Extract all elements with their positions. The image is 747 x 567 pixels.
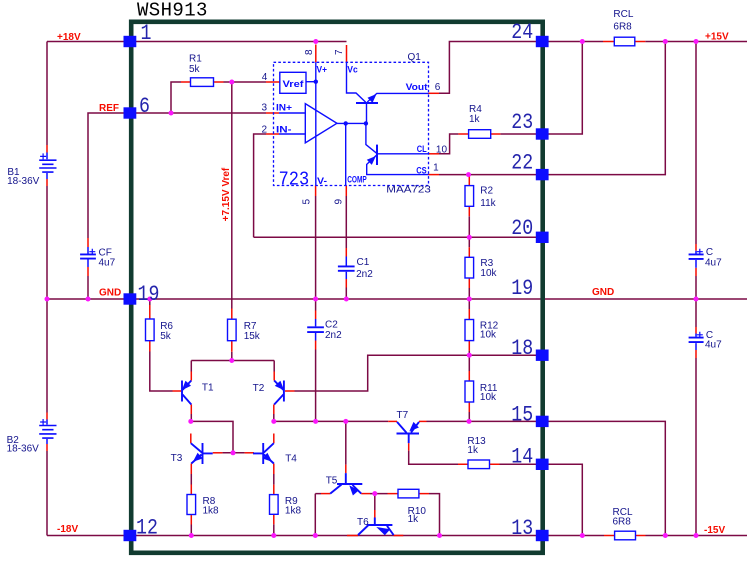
svg-text:18-36V: 18-36V bbox=[7, 443, 40, 454]
svg-text:T6: T6 bbox=[357, 517, 369, 528]
svg-text:18-36V: 18-36V bbox=[7, 176, 40, 187]
svg-text:19: 19 bbox=[138, 283, 160, 308]
svg-text:-18V: -18V bbox=[57, 524, 78, 535]
svg-text:1k: 1k bbox=[467, 445, 479, 456]
svg-text:15k: 15k bbox=[244, 331, 261, 342]
svg-text:6: 6 bbox=[139, 95, 150, 120]
svg-text:T2: T2 bbox=[253, 383, 265, 394]
svg-text:1k8: 1k8 bbox=[203, 506, 220, 517]
svg-text:20: 20 bbox=[511, 217, 533, 242]
svg-text:9: 9 bbox=[334, 199, 345, 205]
svg-text:CS: CS bbox=[416, 166, 427, 177]
svg-text:10k: 10k bbox=[480, 392, 497, 403]
svg-text:1k8: 1k8 bbox=[285, 506, 302, 517]
svg-text:C2: C2 bbox=[325, 320, 338, 331]
svg-text:Q1: Q1 bbox=[408, 52, 422, 63]
svg-text:8: 8 bbox=[304, 49, 315, 55]
svg-text:1k: 1k bbox=[408, 514, 420, 525]
svg-text:24: 24 bbox=[511, 21, 533, 46]
svg-text:+18V: +18V bbox=[57, 32, 81, 43]
svg-text:10: 10 bbox=[436, 145, 448, 156]
svg-text:22: 22 bbox=[511, 151, 533, 176]
svg-text:5k: 5k bbox=[189, 64, 201, 75]
svg-text:V-: V- bbox=[317, 176, 327, 187]
svg-text:T3: T3 bbox=[171, 453, 183, 464]
svg-text:15: 15 bbox=[511, 403, 533, 428]
svg-text:REF: REF bbox=[99, 103, 119, 114]
svg-text:6R8: 6R8 bbox=[613, 517, 632, 528]
svg-text:23: 23 bbox=[511, 111, 533, 136]
svg-text:14: 14 bbox=[511, 445, 533, 470]
svg-text:7: 7 bbox=[334, 49, 345, 55]
svg-text:Vout: Vout bbox=[406, 82, 429, 93]
svg-text:GND: GND bbox=[99, 288, 121, 299]
svg-text:Vc: Vc bbox=[347, 65, 358, 76]
svg-text:RCL: RCL bbox=[613, 9, 633, 20]
svg-text:13: 13 bbox=[511, 517, 533, 542]
svg-text:R1: R1 bbox=[189, 54, 202, 65]
svg-text:C1: C1 bbox=[357, 257, 370, 268]
svg-text:T4: T4 bbox=[285, 454, 297, 465]
svg-text:6R8: 6R8 bbox=[613, 22, 632, 33]
svg-text:MAA723: MAA723 bbox=[386, 185, 431, 196]
svg-text:CL: CL bbox=[417, 144, 427, 155]
svg-text:5: 5 bbox=[302, 199, 313, 205]
svg-text:-15V: -15V bbox=[704, 525, 725, 536]
svg-text:Vref: Vref bbox=[283, 79, 305, 90]
svg-text:GND: GND bbox=[592, 287, 614, 298]
svg-text:5k: 5k bbox=[160, 331, 172, 342]
svg-text:19: 19 bbox=[511, 277, 533, 302]
svg-text:11k: 11k bbox=[480, 198, 496, 209]
svg-text:+7.15V Vref: +7.15V Vref bbox=[221, 167, 232, 221]
svg-text:1k: 1k bbox=[469, 114, 481, 125]
svg-text:18: 18 bbox=[511, 337, 533, 362]
svg-text:4u7: 4u7 bbox=[705, 258, 722, 269]
svg-text:1: 1 bbox=[141, 22, 152, 47]
svg-text:V+: V+ bbox=[317, 65, 328, 76]
svg-text:10k: 10k bbox=[480, 268, 497, 279]
svg-text:R2: R2 bbox=[480, 186, 493, 197]
svg-text:WSH913: WSH913 bbox=[137, 0, 208, 22]
svg-text:T7: T7 bbox=[397, 410, 409, 421]
svg-text:4: 4 bbox=[262, 72, 268, 83]
svg-text:C: C bbox=[706, 247, 713, 258]
svg-text:4u7: 4u7 bbox=[705, 340, 722, 351]
svg-text:COMP: COMP bbox=[347, 175, 367, 186]
svg-text:6: 6 bbox=[435, 82, 441, 93]
svg-text:+15V: +15V bbox=[705, 32, 729, 43]
svg-text:T1: T1 bbox=[202, 383, 214, 394]
svg-text:1: 1 bbox=[433, 163, 439, 174]
svg-text:12: 12 bbox=[136, 516, 158, 541]
svg-text:4u7: 4u7 bbox=[99, 258, 116, 269]
svg-text:723: 723 bbox=[279, 170, 310, 191]
svg-text:2: 2 bbox=[262, 125, 268, 136]
svg-text:T5: T5 bbox=[326, 476, 338, 487]
svg-text:2n2: 2n2 bbox=[325, 330, 342, 341]
svg-text:10k: 10k bbox=[480, 330, 497, 341]
svg-text:IN-: IN- bbox=[276, 125, 292, 136]
svg-text:2n2: 2n2 bbox=[356, 269, 373, 280]
svg-text:IN+: IN+ bbox=[276, 103, 292, 114]
svg-text:3: 3 bbox=[262, 103, 268, 114]
